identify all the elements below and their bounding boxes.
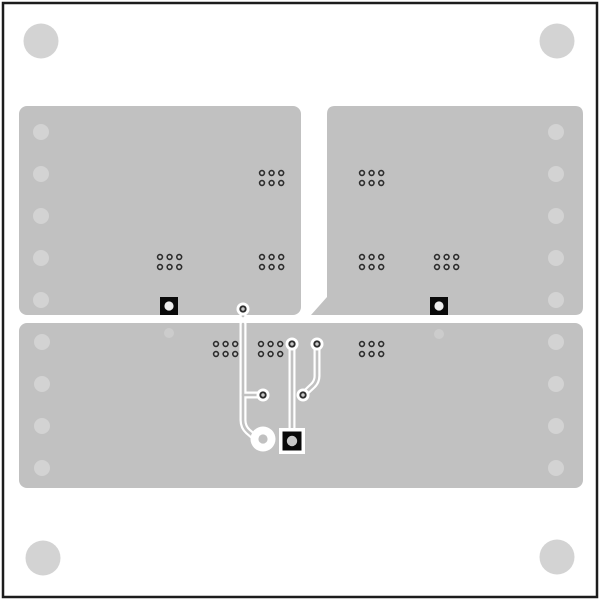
edge-drill-hole	[548, 124, 564, 140]
pcb-layout-view	[0, 0, 600, 600]
cluster-via	[279, 265, 284, 270]
cluster-via	[379, 265, 384, 270]
cluster-via	[214, 342, 219, 347]
edge-drill-hole	[33, 166, 49, 182]
cluster-via	[260, 181, 265, 186]
cluster-via	[214, 352, 219, 357]
cluster-via	[379, 342, 384, 347]
edge-drill-hole	[33, 292, 49, 308]
copper-pour-bottom	[19, 323, 583, 488]
cluster-via	[360, 171, 365, 176]
cluster-via	[369, 255, 374, 260]
cluster-via	[167, 265, 172, 270]
trace-via	[260, 392, 265, 397]
cluster-via	[259, 342, 264, 347]
edge-drill-hole	[548, 460, 564, 476]
cluster-via	[269, 171, 274, 176]
cluster-via	[369, 342, 374, 347]
cluster-via	[233, 352, 238, 357]
mounting-hole	[24, 24, 59, 59]
cluster-via	[279, 181, 284, 186]
trace-via	[289, 341, 294, 346]
edge-drill-hole	[34, 376, 50, 392]
cluster-via	[177, 255, 182, 260]
faint-via	[434, 329, 444, 339]
edge-drill-hole	[548, 208, 564, 224]
cluster-via	[379, 352, 384, 357]
edge-drill-hole	[548, 376, 564, 392]
cluster-via	[369, 171, 374, 176]
cluster-via	[177, 265, 182, 270]
mounting-hole	[540, 540, 575, 575]
pad-top-left-pour-hole	[164, 301, 173, 310]
cluster-via	[260, 171, 265, 176]
cluster-via	[167, 255, 172, 260]
cluster-via	[223, 352, 228, 357]
faint-via	[164, 328, 174, 338]
edge-drill-hole	[34, 460, 50, 476]
copper-pour-top-right	[311, 106, 583, 315]
cluster-via	[379, 181, 384, 186]
cluster-via	[268, 352, 273, 357]
edge-drill-hole	[33, 124, 49, 140]
cluster-via	[360, 352, 365, 357]
edge-drill-hole	[548, 292, 564, 308]
cluster-via	[369, 265, 374, 270]
cluster-via	[259, 352, 264, 357]
cluster-via	[444, 265, 449, 270]
cluster-via	[360, 255, 365, 260]
pcb-board-svg	[0, 0, 600, 600]
cluster-via	[269, 181, 274, 186]
cluster-via	[379, 255, 384, 260]
cluster-via	[233, 342, 238, 347]
cluster-via	[369, 352, 374, 357]
cluster-via	[369, 181, 374, 186]
cluster-via	[279, 255, 284, 260]
edge-drill-hole	[33, 208, 49, 224]
cluster-via	[454, 255, 459, 260]
cluster-via	[444, 255, 449, 260]
annular-ring-hole	[258, 434, 267, 443]
cluster-via	[269, 265, 274, 270]
pad-bottom-center-hole	[287, 436, 297, 446]
cluster-via	[269, 255, 274, 260]
edge-drill-hole	[548, 250, 564, 266]
cluster-via	[360, 342, 365, 347]
cluster-via	[158, 255, 163, 260]
cluster-via	[360, 265, 365, 270]
edge-drill-hole	[33, 250, 49, 266]
cluster-via	[454, 265, 459, 270]
edge-drill-hole	[548, 418, 564, 434]
mounting-hole	[540, 24, 575, 59]
cluster-via	[278, 352, 283, 357]
mounting-hole	[26, 541, 61, 576]
cluster-via	[278, 342, 283, 347]
trace-via	[300, 392, 305, 397]
pad-top-right-pour-hole	[434, 301, 443, 310]
edge-drill-hole	[548, 166, 564, 182]
cluster-via	[435, 265, 440, 270]
copper-pour-top-left	[19, 106, 301, 315]
cluster-via	[360, 181, 365, 186]
cluster-via	[268, 342, 273, 347]
cluster-via	[158, 265, 163, 270]
trace-via	[314, 341, 319, 346]
trace-via	[240, 306, 245, 311]
cluster-via	[223, 342, 228, 347]
cluster-via	[260, 265, 265, 270]
cluster-via	[279, 171, 284, 176]
cluster-via	[435, 255, 440, 260]
cluster-via	[379, 171, 384, 176]
edge-drill-hole	[548, 334, 564, 350]
cluster-via	[260, 255, 265, 260]
edge-drill-hole	[34, 418, 50, 434]
edge-drill-hole	[34, 334, 50, 350]
